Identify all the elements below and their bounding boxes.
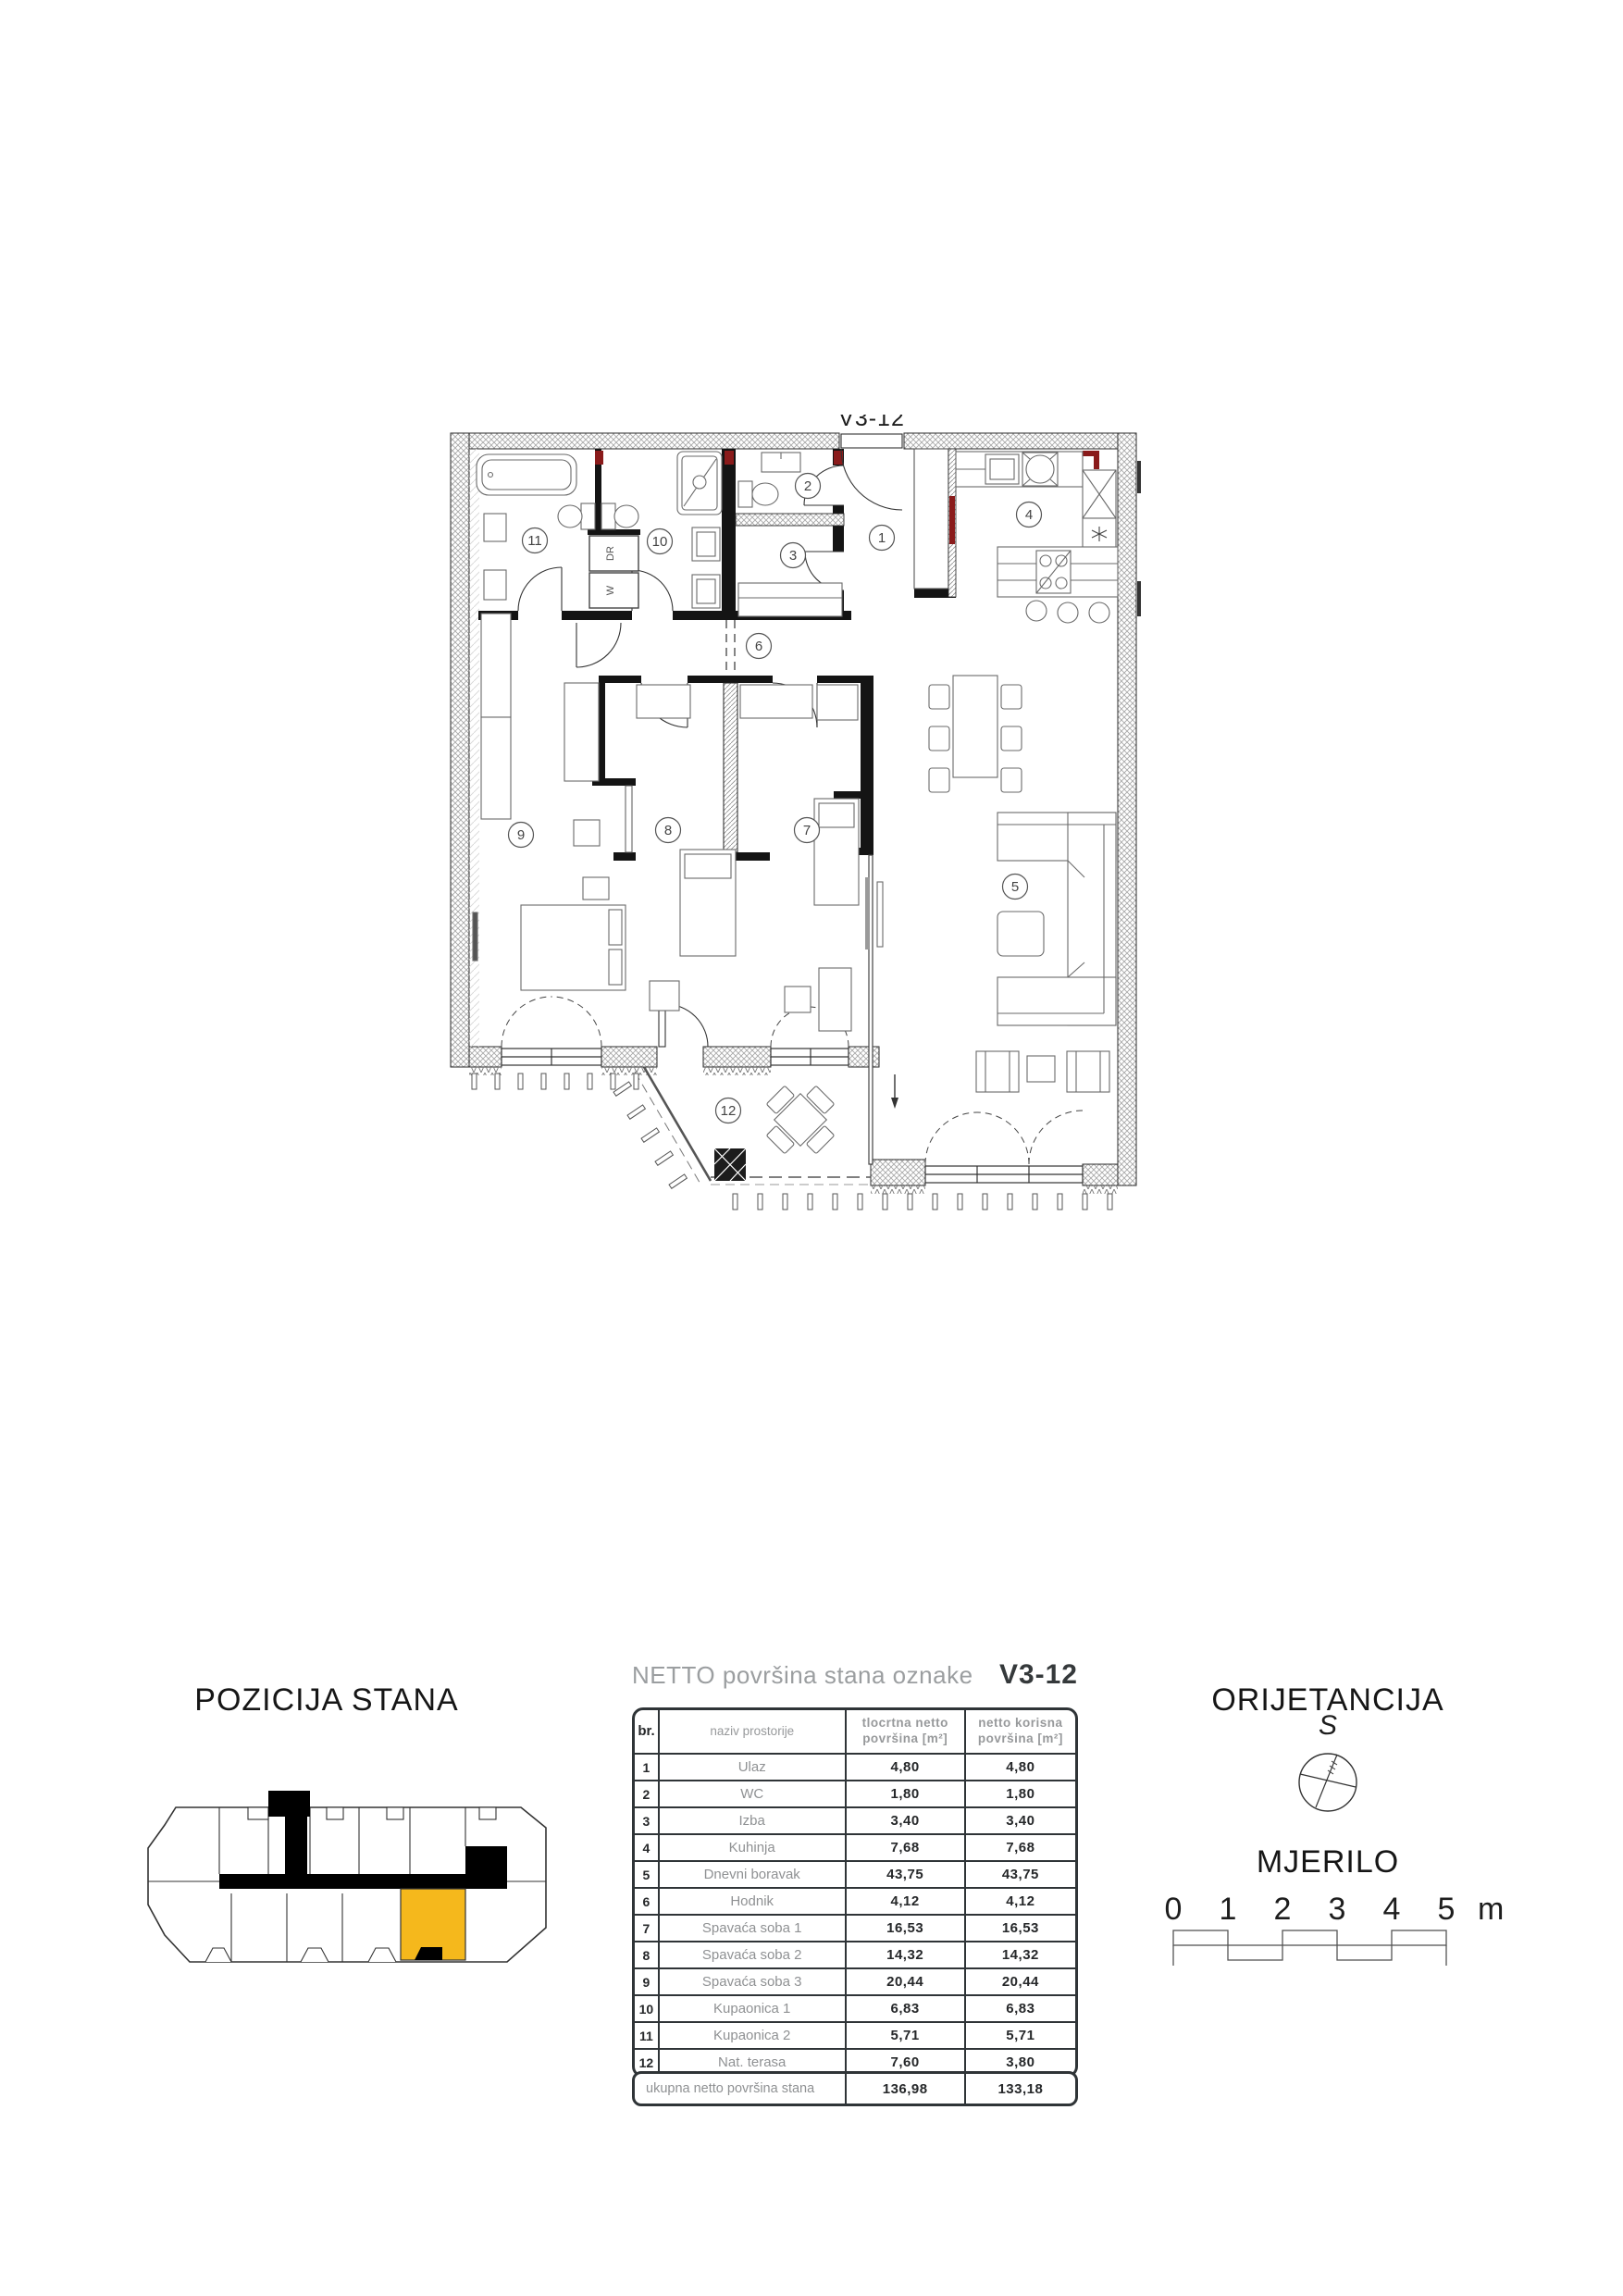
- total-row: ukupna netto površina stana 136,98 133,1…: [632, 2071, 1078, 2106]
- table-row: 9Spavaća soba 320,4420,44: [635, 1967, 1075, 1994]
- entry-closet: [914, 449, 948, 589]
- position-title: POZICIJA STANA: [118, 1682, 535, 1719]
- table-title: NETTO površina stana oznake V3-12: [632, 1659, 1078, 1691]
- scale-4: 4: [1383, 1892, 1401, 1927]
- table-row: 8Spavaća soba 214,3214,32: [635, 1941, 1075, 1967]
- table-header-row: br. naziv prostorije tlocrtna netto povr…: [635, 1710, 1075, 1753]
- position-diagram: [137, 1780, 563, 1979]
- architectural-sheet: DR W: [0, 0, 1623, 2296]
- scale-2: 2: [1274, 1892, 1292, 1927]
- floor-plan: DR W: [444, 415, 1147, 1247]
- table-row: 6Hodnik4,124,12: [635, 1887, 1075, 1914]
- table-row: 7Spavaća soba 116,5316,53: [635, 1914, 1075, 1941]
- room-bubble-3: 3: [781, 543, 806, 568]
- wc-izba-fixtures: [738, 453, 842, 616]
- laundry-closet: DR W: [589, 536, 638, 608]
- room-bubble-11: 11: [523, 528, 548, 553]
- svg-text:10: 10: [652, 534, 668, 550]
- scale-0: 0: [1165, 1892, 1183, 1927]
- room-bubble-4: 4: [1017, 503, 1042, 527]
- compass-icon: [1287, 1742, 1369, 1823]
- total-usable: 133,18: [966, 2074, 1075, 2104]
- table-row: 5Dnevni boravak43,7543,75: [635, 1860, 1075, 1887]
- header-num: br.: [635, 1710, 660, 1753]
- room-bubble-1: 1: [870, 526, 895, 551]
- highlighted-unit: [401, 1889, 465, 1960]
- bedroom-9-furniture: [473, 614, 626, 990]
- table-row: 1Ulaz4,804,80: [635, 1753, 1075, 1780]
- total-label: ukupna netto površina stana: [635, 2074, 847, 2104]
- scale-bar: 0 1 2 3 4 5 m: [1152, 1890, 1522, 1982]
- svg-text:8: 8: [664, 823, 672, 838]
- svg-text:11: 11: [527, 533, 542, 549]
- svg-text:6: 6: [755, 639, 762, 654]
- header-floor: tlocrtna netto površina [m²]: [847, 1710, 966, 1753]
- section-line: [726, 620, 735, 676]
- table-title-unit: V3-12: [999, 1659, 1078, 1691]
- svg-text:4: 4: [1025, 507, 1033, 523]
- svg-text:2: 2: [804, 478, 811, 494]
- scale-3: 3: [1329, 1892, 1346, 1927]
- exterior-rail-marks: [1137, 461, 1141, 616]
- table-row: 3Izba3,403,40: [635, 1806, 1075, 1833]
- scale-unit: m: [1478, 1892, 1504, 1927]
- room-bubble-2: 2: [796, 474, 821, 499]
- bedroom-8-furniture: [637, 685, 736, 1011]
- room-bubble-8: 8: [656, 818, 681, 843]
- wall-9-8-lower: [626, 786, 632, 852]
- table-row: 2WC1,801,80: [635, 1780, 1075, 1806]
- room-bubble-12: 12: [716, 1098, 741, 1123]
- room-bubble-7: 7: [795, 818, 820, 843]
- room-bubble-6: 6: [747, 634, 772, 659]
- living-room-furniture: [877, 813, 1116, 1092]
- svg-text:7: 7: [803, 823, 811, 838]
- north-letter: S: [1161, 1710, 1494, 1742]
- svg-text:5: 5: [1011, 879, 1019, 895]
- installation-shaft: [724, 683, 737, 852]
- total-floor: 136,98: [847, 2074, 966, 2104]
- room-bubble-5: 5: [1003, 875, 1028, 900]
- bathroom-11-fixtures: [477, 454, 595, 600]
- scale-1: 1: [1220, 1892, 1237, 1927]
- unit-label: V3-12: [838, 415, 905, 431]
- scale-title: MJERILO: [1161, 1844, 1494, 1880]
- washer-label: W: [605, 585, 616, 595]
- hatch-wall-2-3: [736, 514, 844, 526]
- table-row: 10Kupaonica 16,836,83: [635, 1994, 1075, 2021]
- sliding-door-panel: [865, 877, 870, 949]
- dining-set: [929, 676, 1022, 792]
- table-row: 4Kuhinja7,687,68: [635, 1833, 1075, 1860]
- dryer-label: DR: [605, 546, 616, 561]
- area-table: br. naziv prostorije tlocrtna netto povr…: [632, 1707, 1078, 2078]
- room-bubble-10: 10: [648, 529, 673, 554]
- svg-text:9: 9: [517, 827, 525, 843]
- svg-text:12: 12: [721, 1103, 737, 1119]
- scale-5: 5: [1438, 1892, 1456, 1927]
- room-bubble-9: 9: [509, 823, 534, 848]
- header-usable: netto korisna površina [m²]: [966, 1710, 1075, 1753]
- room-number-bubbles: 1 2 3 4 5 6 7 8 9 10 11 12: [509, 474, 1042, 1123]
- kitchen-fixtures: [956, 452, 1118, 623]
- table-row: 11Kupaonica 25,715,71: [635, 2021, 1075, 2048]
- table-title-prefix: NETTO površina stana oznake: [632, 1661, 973, 1690]
- svg-text:3: 3: [789, 548, 797, 564]
- terrace: [635, 1067, 898, 1185]
- svg-text:1: 1: [878, 530, 886, 546]
- header-name: naziv prostorije: [660, 1710, 847, 1753]
